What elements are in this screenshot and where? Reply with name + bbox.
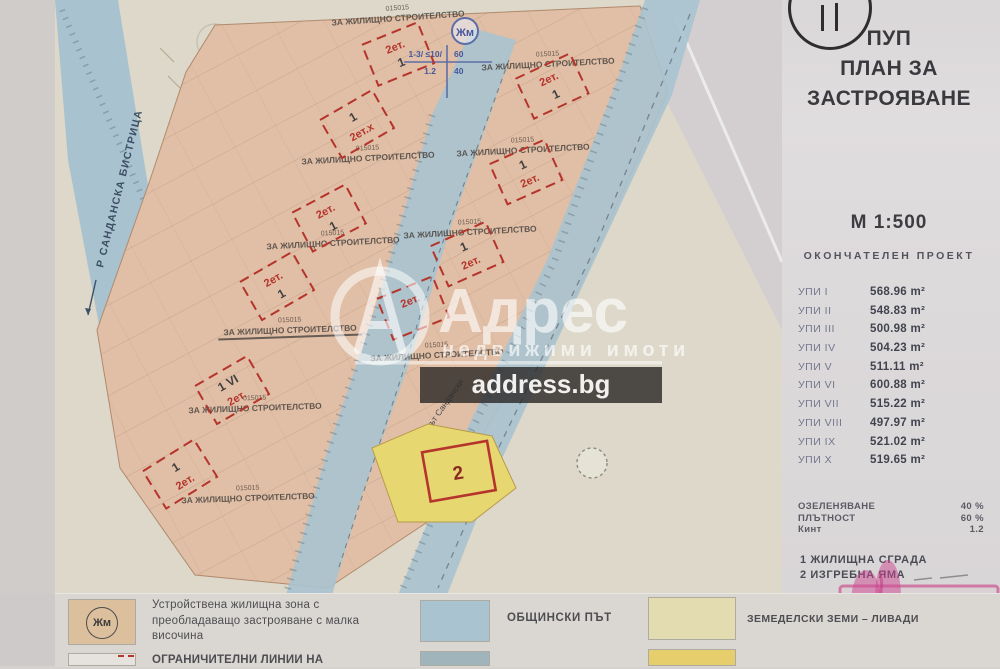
parameter-value: 40 %: [961, 501, 984, 513]
title-block: ПУП ПЛАН ЗА ЗАСТРОЯВАНЕ М 1:500 ОКОНЧАТЕ…: [782, 0, 1000, 595]
upi-label: УПИ X: [798, 454, 870, 466]
parameter-row: ПЛЪТНОСТ60 %: [798, 513, 984, 525]
legend-label-municipal-road: ОБЩИНСКИ ПЪТ: [507, 611, 612, 627]
legend-margin: [0, 593, 55, 666]
zone-symbol: Жм: [455, 27, 474, 39]
project-status: ОКОНЧАТЕЛЕН ПРОЕКТ: [782, 250, 996, 262]
zone-kint: 1.2: [424, 66, 436, 76]
upi-label: УПИ I: [798, 286, 870, 298]
upi-label: УПИ III: [798, 323, 870, 335]
upi-row: УПИ VI600.88 m²: [798, 379, 988, 398]
legend-label-restriction-lines: ОГРАНИЧИТЕЛНИ ЛИНИИ НА: [152, 653, 323, 669]
upi-label: УПИ V: [798, 361, 870, 373]
upi-area: 600.88 m²: [870, 379, 925, 391]
upi-area: 521.02 m²: [870, 436, 925, 448]
zone-symbol-icon: Жм: [86, 607, 118, 639]
upi-label: УПИ VII: [798, 398, 870, 410]
upi-area: 548.83 m²: [870, 305, 925, 317]
legend-label-residential: Устройствена жилищна зона с преобладаващ…: [152, 598, 422, 645]
survey-circle-bottom: [577, 448, 607, 478]
upi-row: УПИ I568.96 m²: [798, 286, 988, 305]
upi-label: УПИ VI: [798, 379, 870, 391]
map-scale: М 1:500: [782, 212, 996, 234]
plan-title-line: ПУП: [782, 24, 996, 54]
parameter-label: Кинт: [798, 524, 822, 536]
upi-row: УПИ V511.11 m²: [798, 361, 988, 380]
upi-area: 497.97 m²: [870, 417, 925, 429]
upi-area: 515.22 m²: [870, 398, 925, 410]
legend-swatch-agricultural-secondary: [648, 649, 736, 666]
upi-area: 519.65 m²: [870, 454, 925, 466]
plan-title-line: ЗАСТРОЯВАНЕ: [782, 84, 996, 114]
legend-swatch-agricultural: [648, 597, 736, 640]
plot-number: 015015: [278, 317, 302, 325]
site-plan-map: Р САНДАНСКА БИСТРИЦА път Сандански: [0, 0, 782, 666]
upi-row: УПИ X519.65 m²: [798, 454, 988, 473]
upi-label: УПИ IX: [798, 436, 870, 448]
zone-floors: 1-3/ ≤10/: [409, 49, 443, 59]
upi-area: 568.96 m²: [870, 286, 925, 298]
upi-area: 511.11 m²: [870, 361, 924, 373]
parameter-value: 60 %: [961, 513, 984, 525]
watermark-subtitle: недвижими имоти: [442, 339, 690, 361]
upi-row: УПИ VII515.22 m²: [798, 398, 988, 417]
plan-title-line: ПЛАН ЗА: [782, 54, 996, 84]
parameter-label: ОЗЕЛЕНЯВАНЕ: [798, 501, 875, 513]
parameter-row: Кинт1.2: [798, 524, 984, 536]
zone-density: 60: [454, 49, 464, 59]
legend-swatch-road-secondary: [420, 651, 490, 666]
upi-row: УПИ IV504.23 m²: [798, 342, 988, 361]
upi-row: УПИ VIII497.97 m²: [798, 417, 988, 436]
zoning-parameters: ОЗЕЛЕНЯВАНЕ40 %ПЛЪТНОСТ60 %Кинт1.2: [798, 501, 984, 536]
parameter-value: 1.2: [970, 524, 984, 536]
upi-area: 500.98 m²: [870, 323, 925, 335]
plot-number: 015015: [511, 136, 535, 144]
watermark-brand: Адрес: [438, 277, 628, 346]
plot-number: 015015: [536, 50, 560, 58]
upi-row: УПИ II548.83 m²: [798, 305, 988, 324]
plan-title: ПУП ПЛАН ЗА ЗАСТРОЯВАНЕ: [782, 24, 996, 114]
restriction-line-icon: [118, 655, 134, 657]
zone-greening: 40: [454, 66, 464, 76]
upi-area: 504.23 m²: [870, 342, 925, 354]
upi-label: УПИ VIII: [798, 417, 870, 429]
upi-label: УПИ IV: [798, 342, 870, 354]
legend-label-agricultural: ЗЕМЕДЕЛСКИ ЗЕМИ – ЛИВАДИ: [747, 612, 919, 628]
upi-row: УПИ IX521.02 m²: [798, 436, 988, 455]
legend-swatch-municipal-road: [420, 600, 490, 642]
plot-number: 015015: [236, 485, 260, 493]
parameter-label: ПЛЪТНОСТ: [798, 513, 855, 525]
legend-swatch-residential: Жм: [68, 599, 136, 645]
upi-row: УПИ III500.98 m²: [798, 323, 988, 342]
parameter-row: ОЗЕЛЕНЯВАНЕ40 %: [798, 501, 984, 513]
watermark-domain: address.bg: [472, 369, 611, 399]
upi-table: УПИ I568.96 m²УПИ II548.83 m²УПИ III500.…: [798, 286, 988, 473]
upi-label: УПИ II: [798, 305, 870, 317]
